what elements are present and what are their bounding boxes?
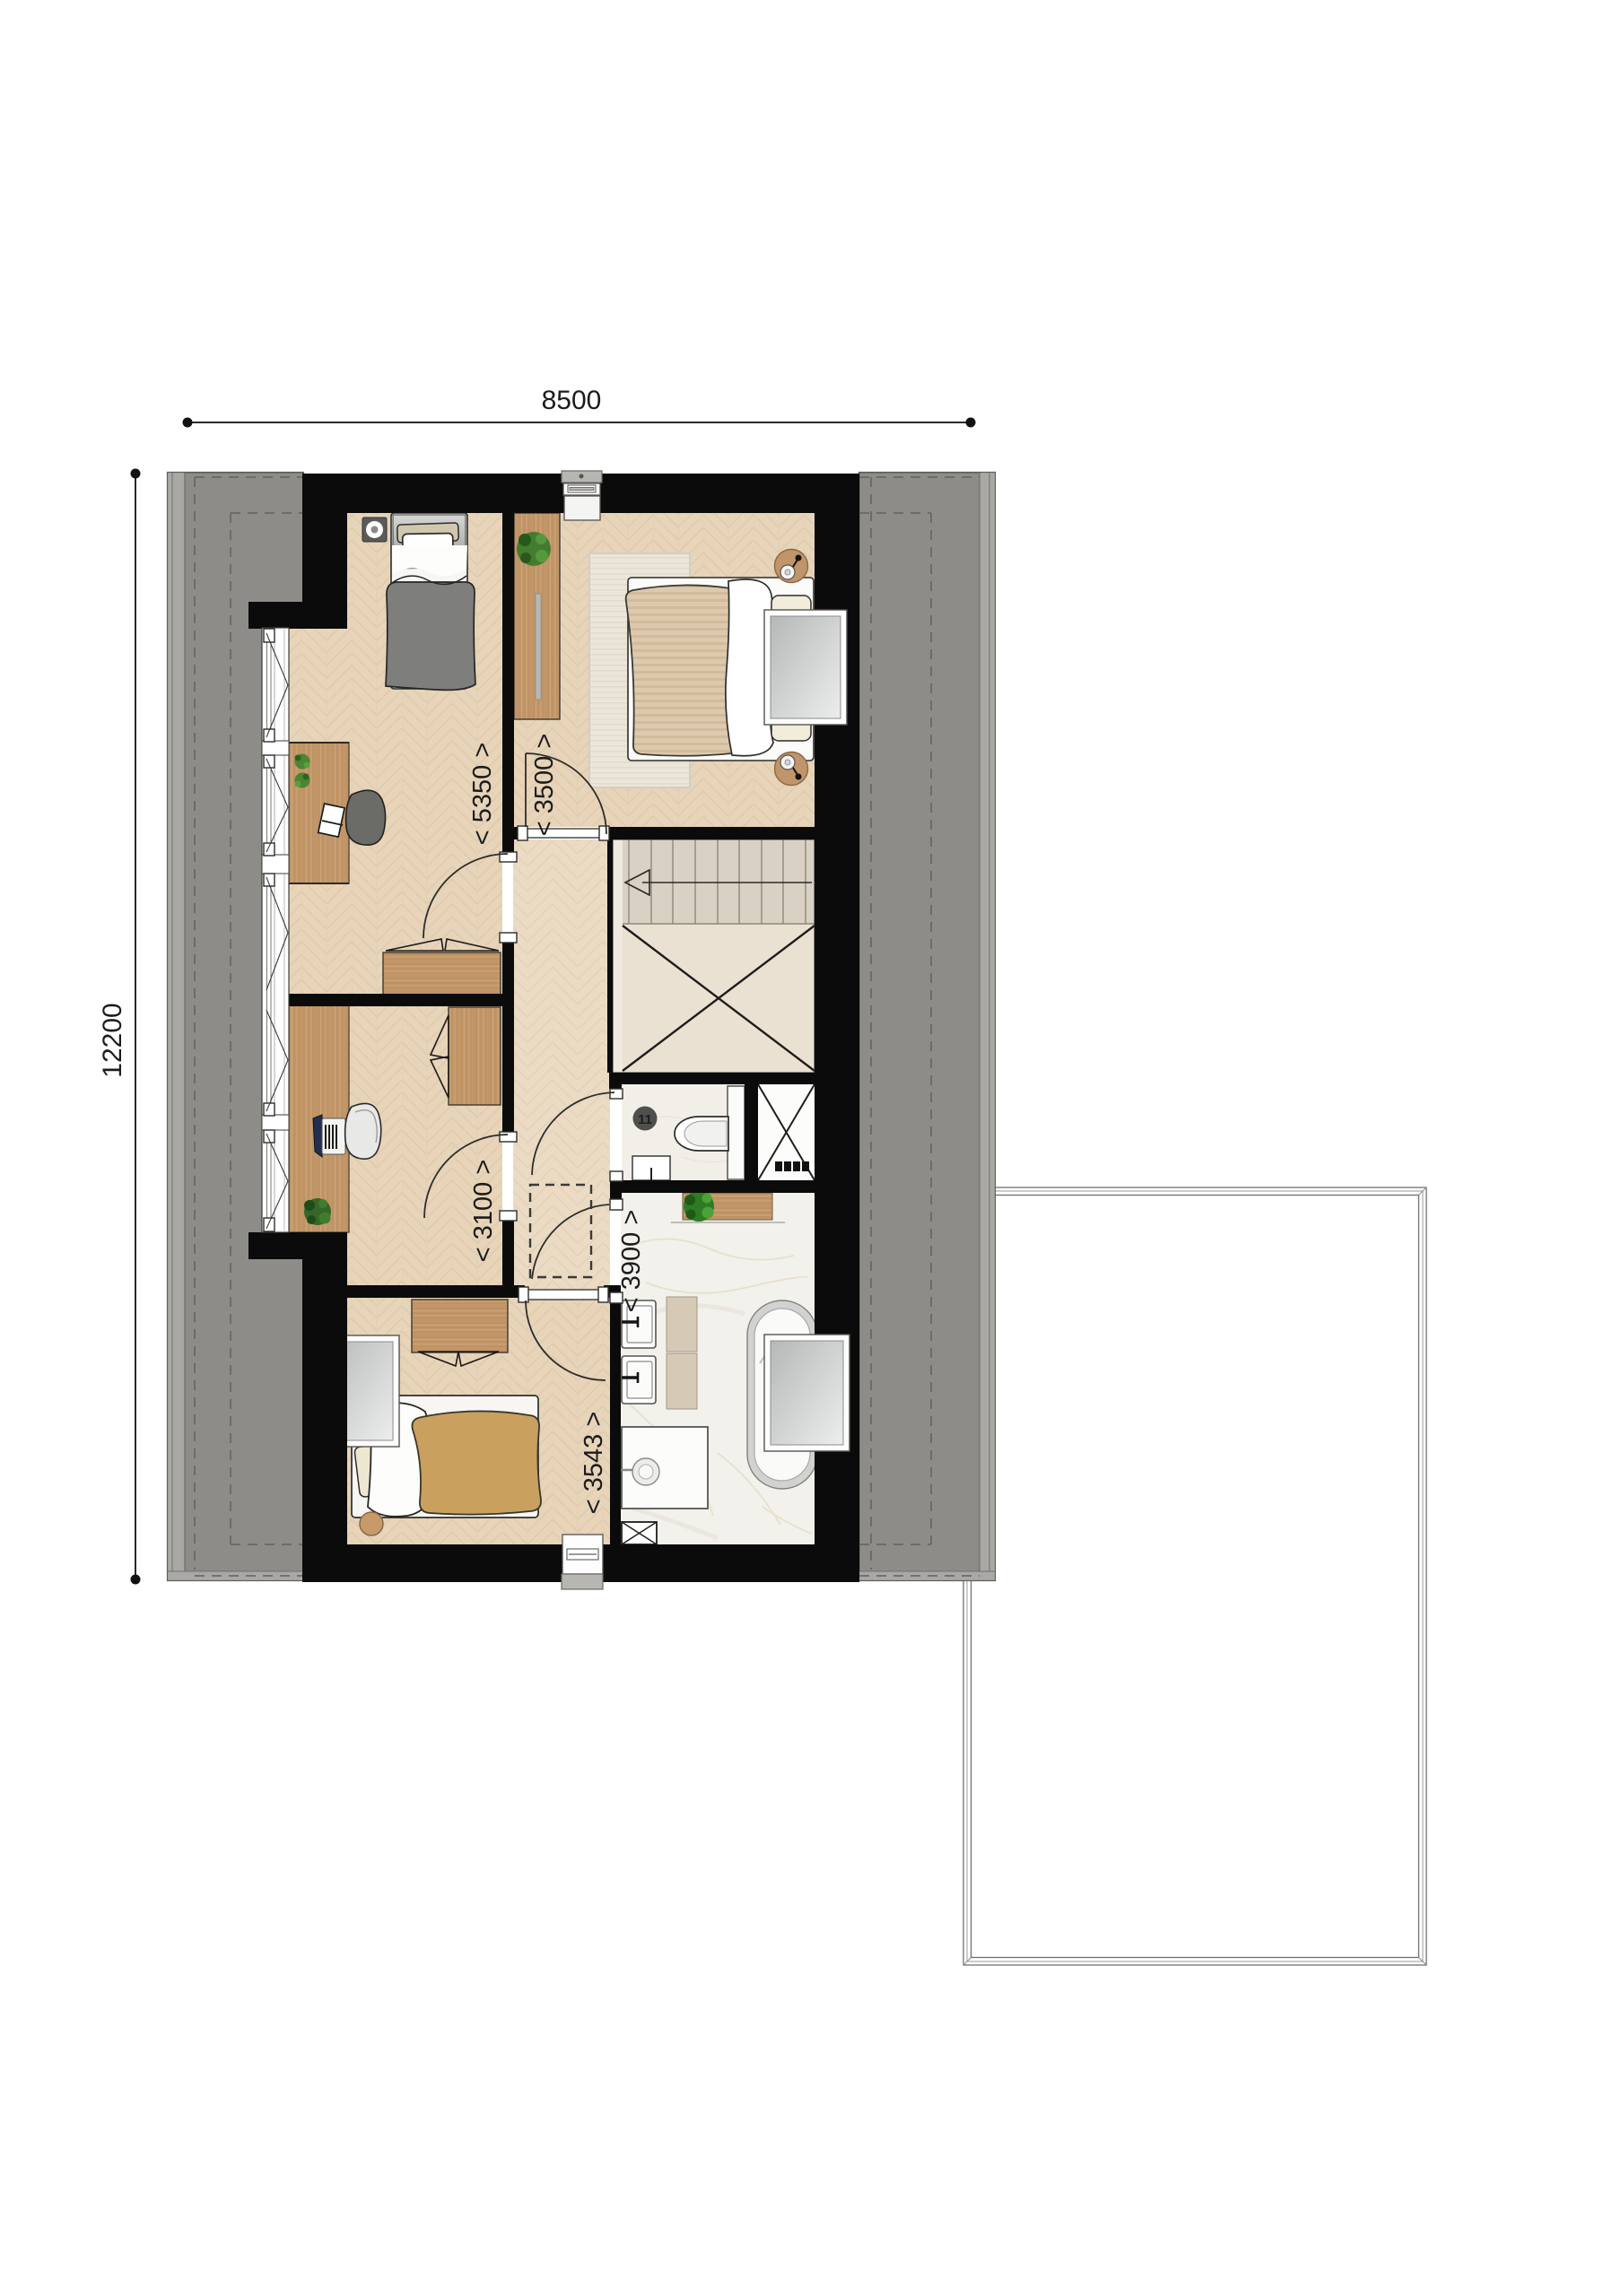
svg-text:< 3900 >: < 3900 > [617, 1210, 646, 1313]
svg-text:11: 11 [638, 1112, 652, 1127]
svg-text:< 3543 >: < 3543 > [580, 1412, 608, 1515]
svg-text:8500: 8500 [542, 386, 602, 415]
svg-text:< 3100 >: < 3100 > [469, 1160, 498, 1263]
svg-text:< 5350 >: < 5350 > [468, 743, 497, 846]
svg-text:< 3500 >: < 3500 > [530, 734, 559, 837]
svg-text:12200: 12200 [98, 1003, 127, 1077]
